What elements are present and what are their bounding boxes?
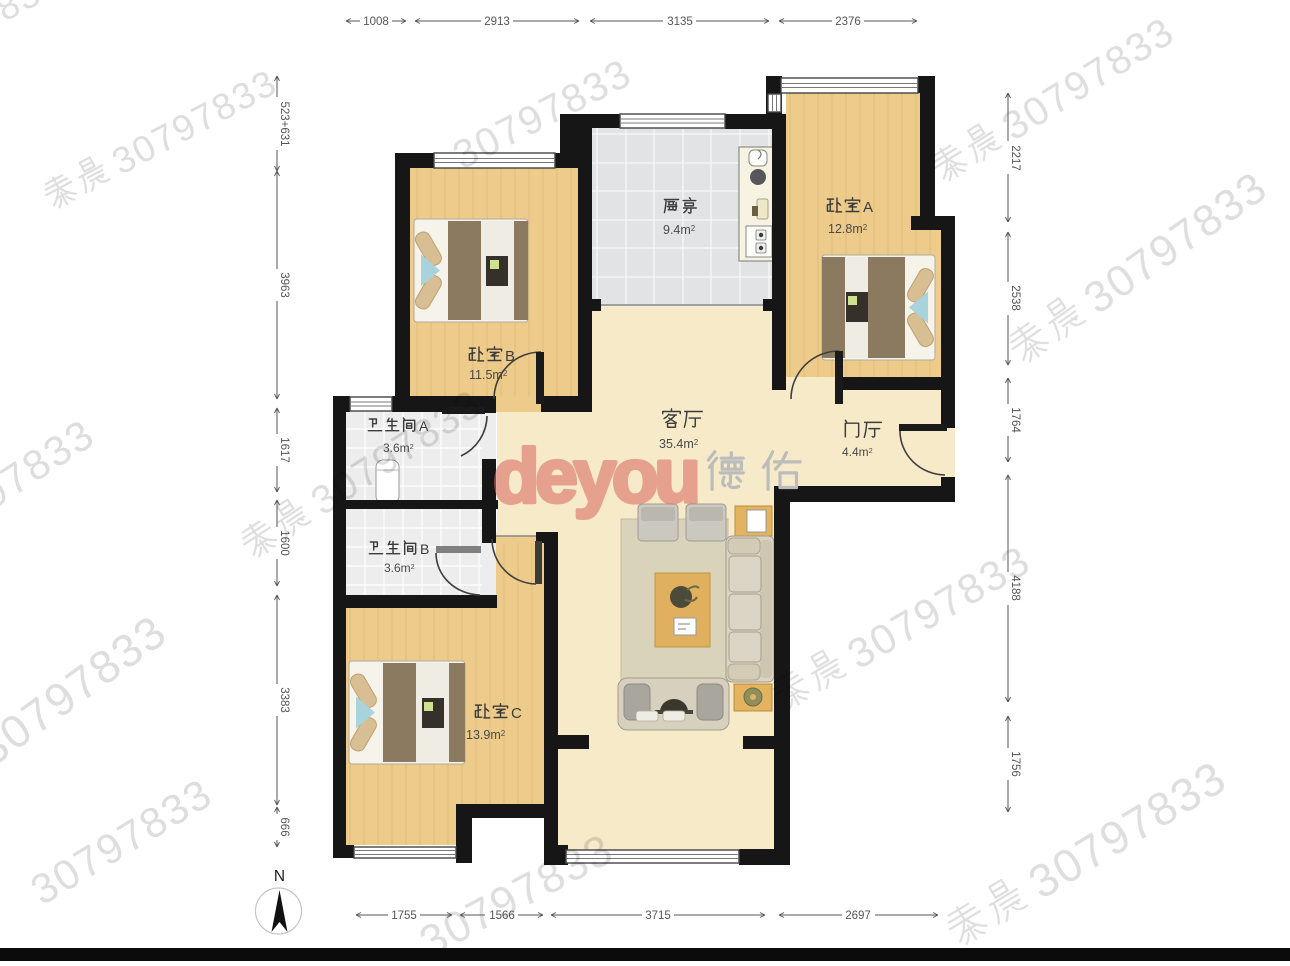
svg-text:2538: 2538	[1009, 285, 1021, 311]
svg-text:3.6m2: 3.6m2	[383, 441, 414, 455]
svg-text:13.9m2: 13.9m2	[466, 728, 506, 742]
svg-text:666: 666	[278, 817, 290, 836]
svg-text:523+631: 523+631	[278, 101, 290, 146]
svg-text:3963: 3963	[278, 272, 290, 298]
svg-text:35.4m2: 35.4m2	[659, 437, 699, 451]
svg-text:1600: 1600	[278, 530, 290, 556]
svg-text:A: A	[863, 199, 873, 216]
svg-text:B: B	[420, 541, 429, 557]
svg-text:4.4m2: 4.4m2	[842, 445, 873, 459]
svg-text:4188: 4188	[1009, 575, 1021, 601]
svg-text:3.6m2: 3.6m2	[384, 561, 415, 575]
svg-text:1764: 1764	[1009, 407, 1021, 433]
svg-text:3383: 3383	[278, 687, 290, 713]
svg-text:2913: 2913	[484, 16, 510, 28]
svg-text:2217: 2217	[1009, 145, 1021, 171]
svg-text:C: C	[511, 705, 522, 722]
svg-text:11.5m2: 11.5m2	[469, 368, 508, 382]
svg-text:1566: 1566	[489, 910, 515, 922]
svg-text:12.8m2: 12.8m2	[828, 222, 868, 236]
svg-text:3715: 3715	[645, 910, 671, 922]
svg-text:1755: 1755	[391, 910, 417, 922]
svg-text:1008: 1008	[363, 16, 389, 28]
svg-text:3135: 3135	[667, 16, 693, 28]
svg-text:1756: 1756	[1009, 751, 1021, 777]
svg-text:N: N	[274, 868, 285, 885]
svg-text:1617: 1617	[278, 437, 290, 463]
svg-text:2697: 2697	[845, 910, 871, 922]
svg-text:2376: 2376	[835, 16, 861, 28]
svg-text:A: A	[419, 418, 429, 434]
svg-text:B: B	[505, 348, 515, 365]
